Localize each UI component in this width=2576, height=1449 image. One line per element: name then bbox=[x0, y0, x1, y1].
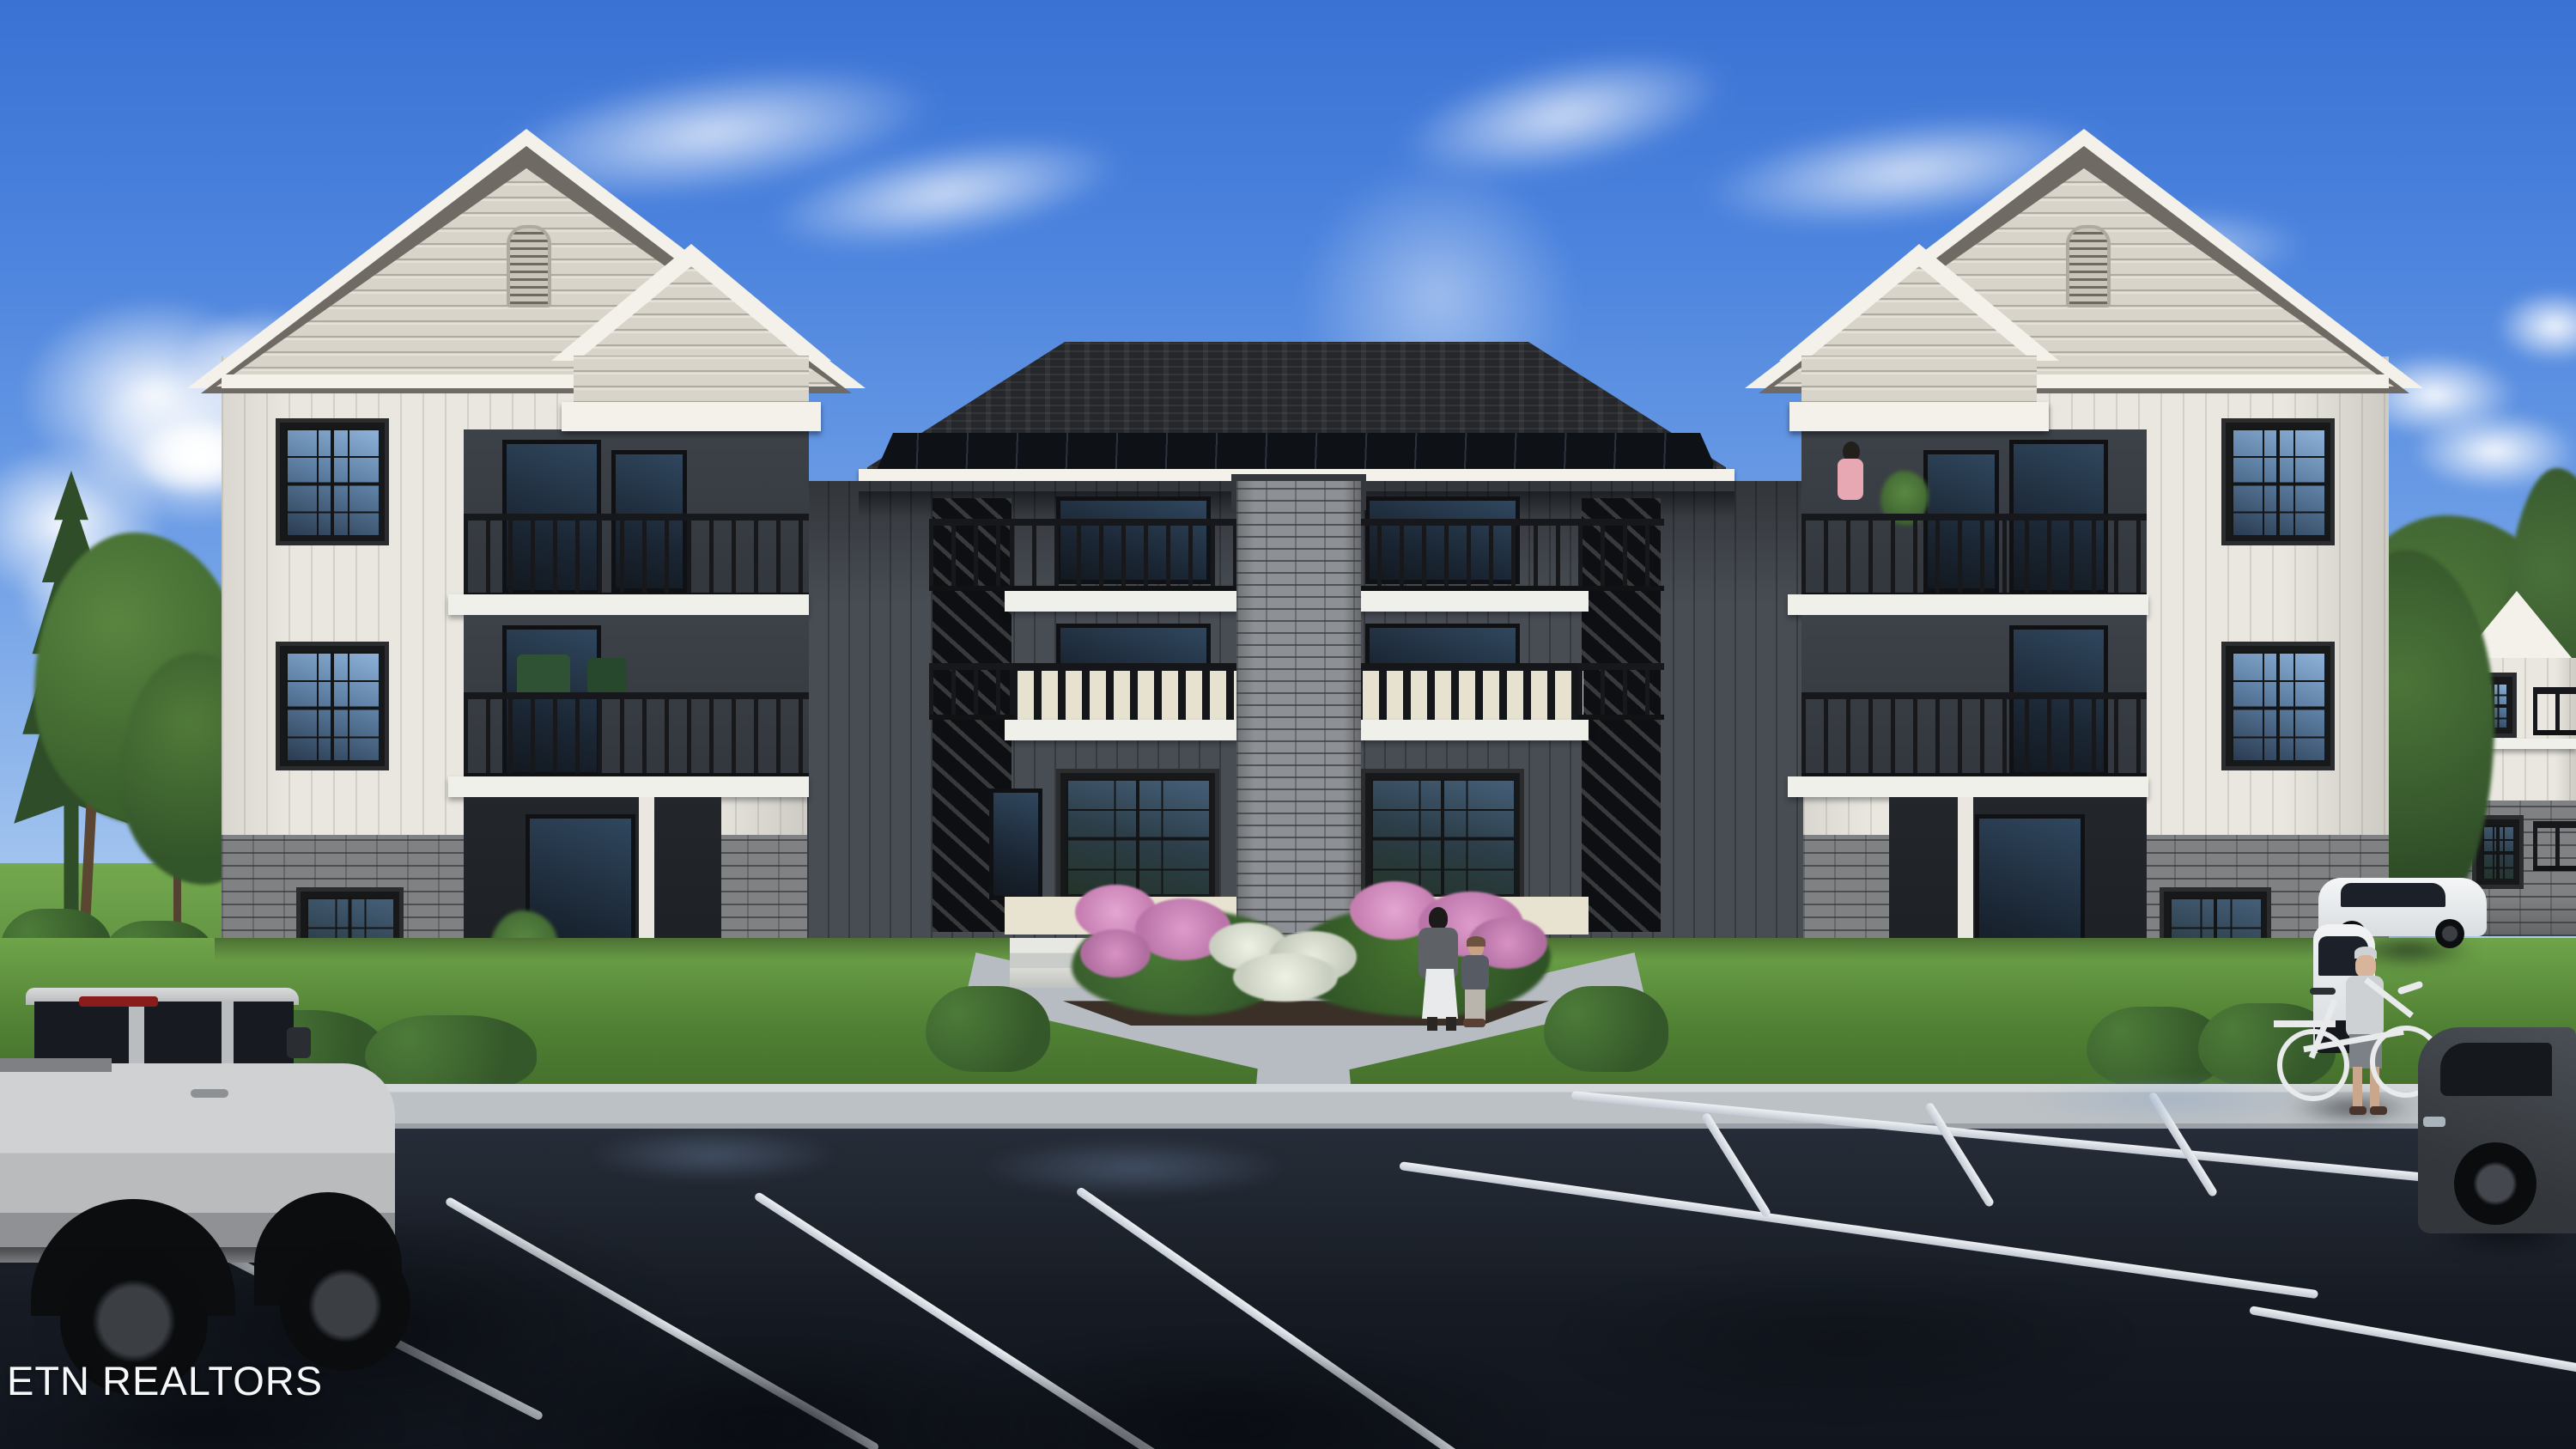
bicycle-rear-rack bbox=[2274, 1020, 2336, 1027]
walkway-child-pants bbox=[1465, 989, 1485, 1020]
bicycle-man-leg bbox=[2353, 1067, 2362, 1111]
floor-band bbox=[448, 776, 809, 797]
background-building-balcony-railing bbox=[2533, 687, 2576, 735]
balcony-chair bbox=[587, 658, 627, 694]
hedge bbox=[365, 1015, 537, 1091]
balcony-railing bbox=[1355, 519, 1583, 591]
gable-louver-vent bbox=[2066, 225, 2111, 307]
stair-railing bbox=[929, 519, 1015, 591]
stair-railing bbox=[929, 663, 1015, 720]
stair-railing bbox=[1578, 663, 1664, 720]
floor-band bbox=[1355, 591, 1589, 612]
walkway-child-top bbox=[1461, 955, 1489, 991]
bicycle-man-shoe bbox=[2370, 1106, 2387, 1115]
balcony-railing bbox=[1010, 519, 1238, 591]
watermark-text: ETN REALTORS bbox=[7, 1357, 323, 1404]
balcony-woman-top bbox=[1838, 459, 1863, 500]
dark-gray-car-glass bbox=[2440, 1043, 2552, 1096]
floor-band bbox=[1788, 594, 2148, 615]
white-flowers bbox=[1233, 953, 1338, 1002]
walkway-child-hair bbox=[1467, 936, 1485, 947]
stair-railing bbox=[1578, 519, 1664, 591]
walkway-woman-dress bbox=[1422, 969, 1458, 1019]
right-bay-shingle-band bbox=[1801, 356, 2037, 405]
walkway-child-shoes bbox=[1463, 1019, 1485, 1027]
tree-shadow bbox=[1460, 1237, 2233, 1443]
left-wing-window-f2 bbox=[280, 646, 385, 766]
walkway-balustrade bbox=[1355, 663, 1583, 720]
floor-band bbox=[1005, 591, 1238, 612]
brick-elevator-tower bbox=[1236, 481, 1361, 959]
floor-band bbox=[1355, 720, 1589, 740]
left-bay-shingle-band bbox=[574, 356, 809, 405]
truck-bed-rail bbox=[0, 1058, 112, 1072]
floor-band bbox=[1788, 776, 2148, 797]
right-wing-window-f2 bbox=[2226, 646, 2330, 766]
walkway-woman-head bbox=[1429, 907, 1448, 929]
truck-door-handle bbox=[191, 1089, 228, 1098]
bicycle-man-head bbox=[2355, 955, 2376, 977]
bicycle-man-shoe bbox=[2349, 1106, 2366, 1115]
bicycle-seat bbox=[2310, 988, 2336, 995]
entrance-door bbox=[989, 788, 1042, 900]
ground-window bbox=[1060, 773, 1215, 900]
balcony-railing bbox=[464, 514, 809, 598]
dark-car-wheel bbox=[2454, 1142, 2537, 1225]
left-wing-window-f3 bbox=[280, 423, 385, 541]
balcony-railing bbox=[1801, 692, 2147, 778]
rendering-canvas: ETN REALTORS bbox=[0, 0, 2576, 1449]
truck-mirror bbox=[287, 1027, 311, 1058]
pavement-reflection bbox=[532, 1117, 893, 1194]
right-bay-soffit bbox=[1789, 402, 2049, 431]
truck-brake-light bbox=[79, 996, 158, 1007]
background-building-balcony-railing bbox=[2533, 821, 2576, 871]
floor-band bbox=[1005, 720, 1238, 740]
truck-rocker-shadow bbox=[0, 1247, 397, 1269]
bush bbox=[1544, 986, 1668, 1072]
walkway-woman-shoe bbox=[1427, 1017, 1437, 1031]
white-sedan-glass bbox=[2341, 883, 2445, 907]
balcony-railing bbox=[1801, 514, 2147, 598]
pink-flowers bbox=[1080, 929, 1151, 977]
right-wing-window-f3 bbox=[2226, 423, 2330, 541]
walkway-balustrade bbox=[1010, 663, 1238, 720]
walkway-woman-shoe bbox=[1446, 1017, 1456, 1031]
left-bay-soffit bbox=[562, 402, 821, 431]
gable-louver-vent bbox=[507, 225, 551, 307]
floor-band bbox=[448, 594, 809, 615]
balcony-chair bbox=[517, 654, 570, 697]
sedan-wheel bbox=[2435, 919, 2464, 948]
dark-car-headlight bbox=[2423, 1117, 2445, 1127]
bush bbox=[926, 986, 1050, 1072]
balcony-railing bbox=[464, 692, 809, 778]
pavement-reflection bbox=[910, 1125, 1357, 1211]
